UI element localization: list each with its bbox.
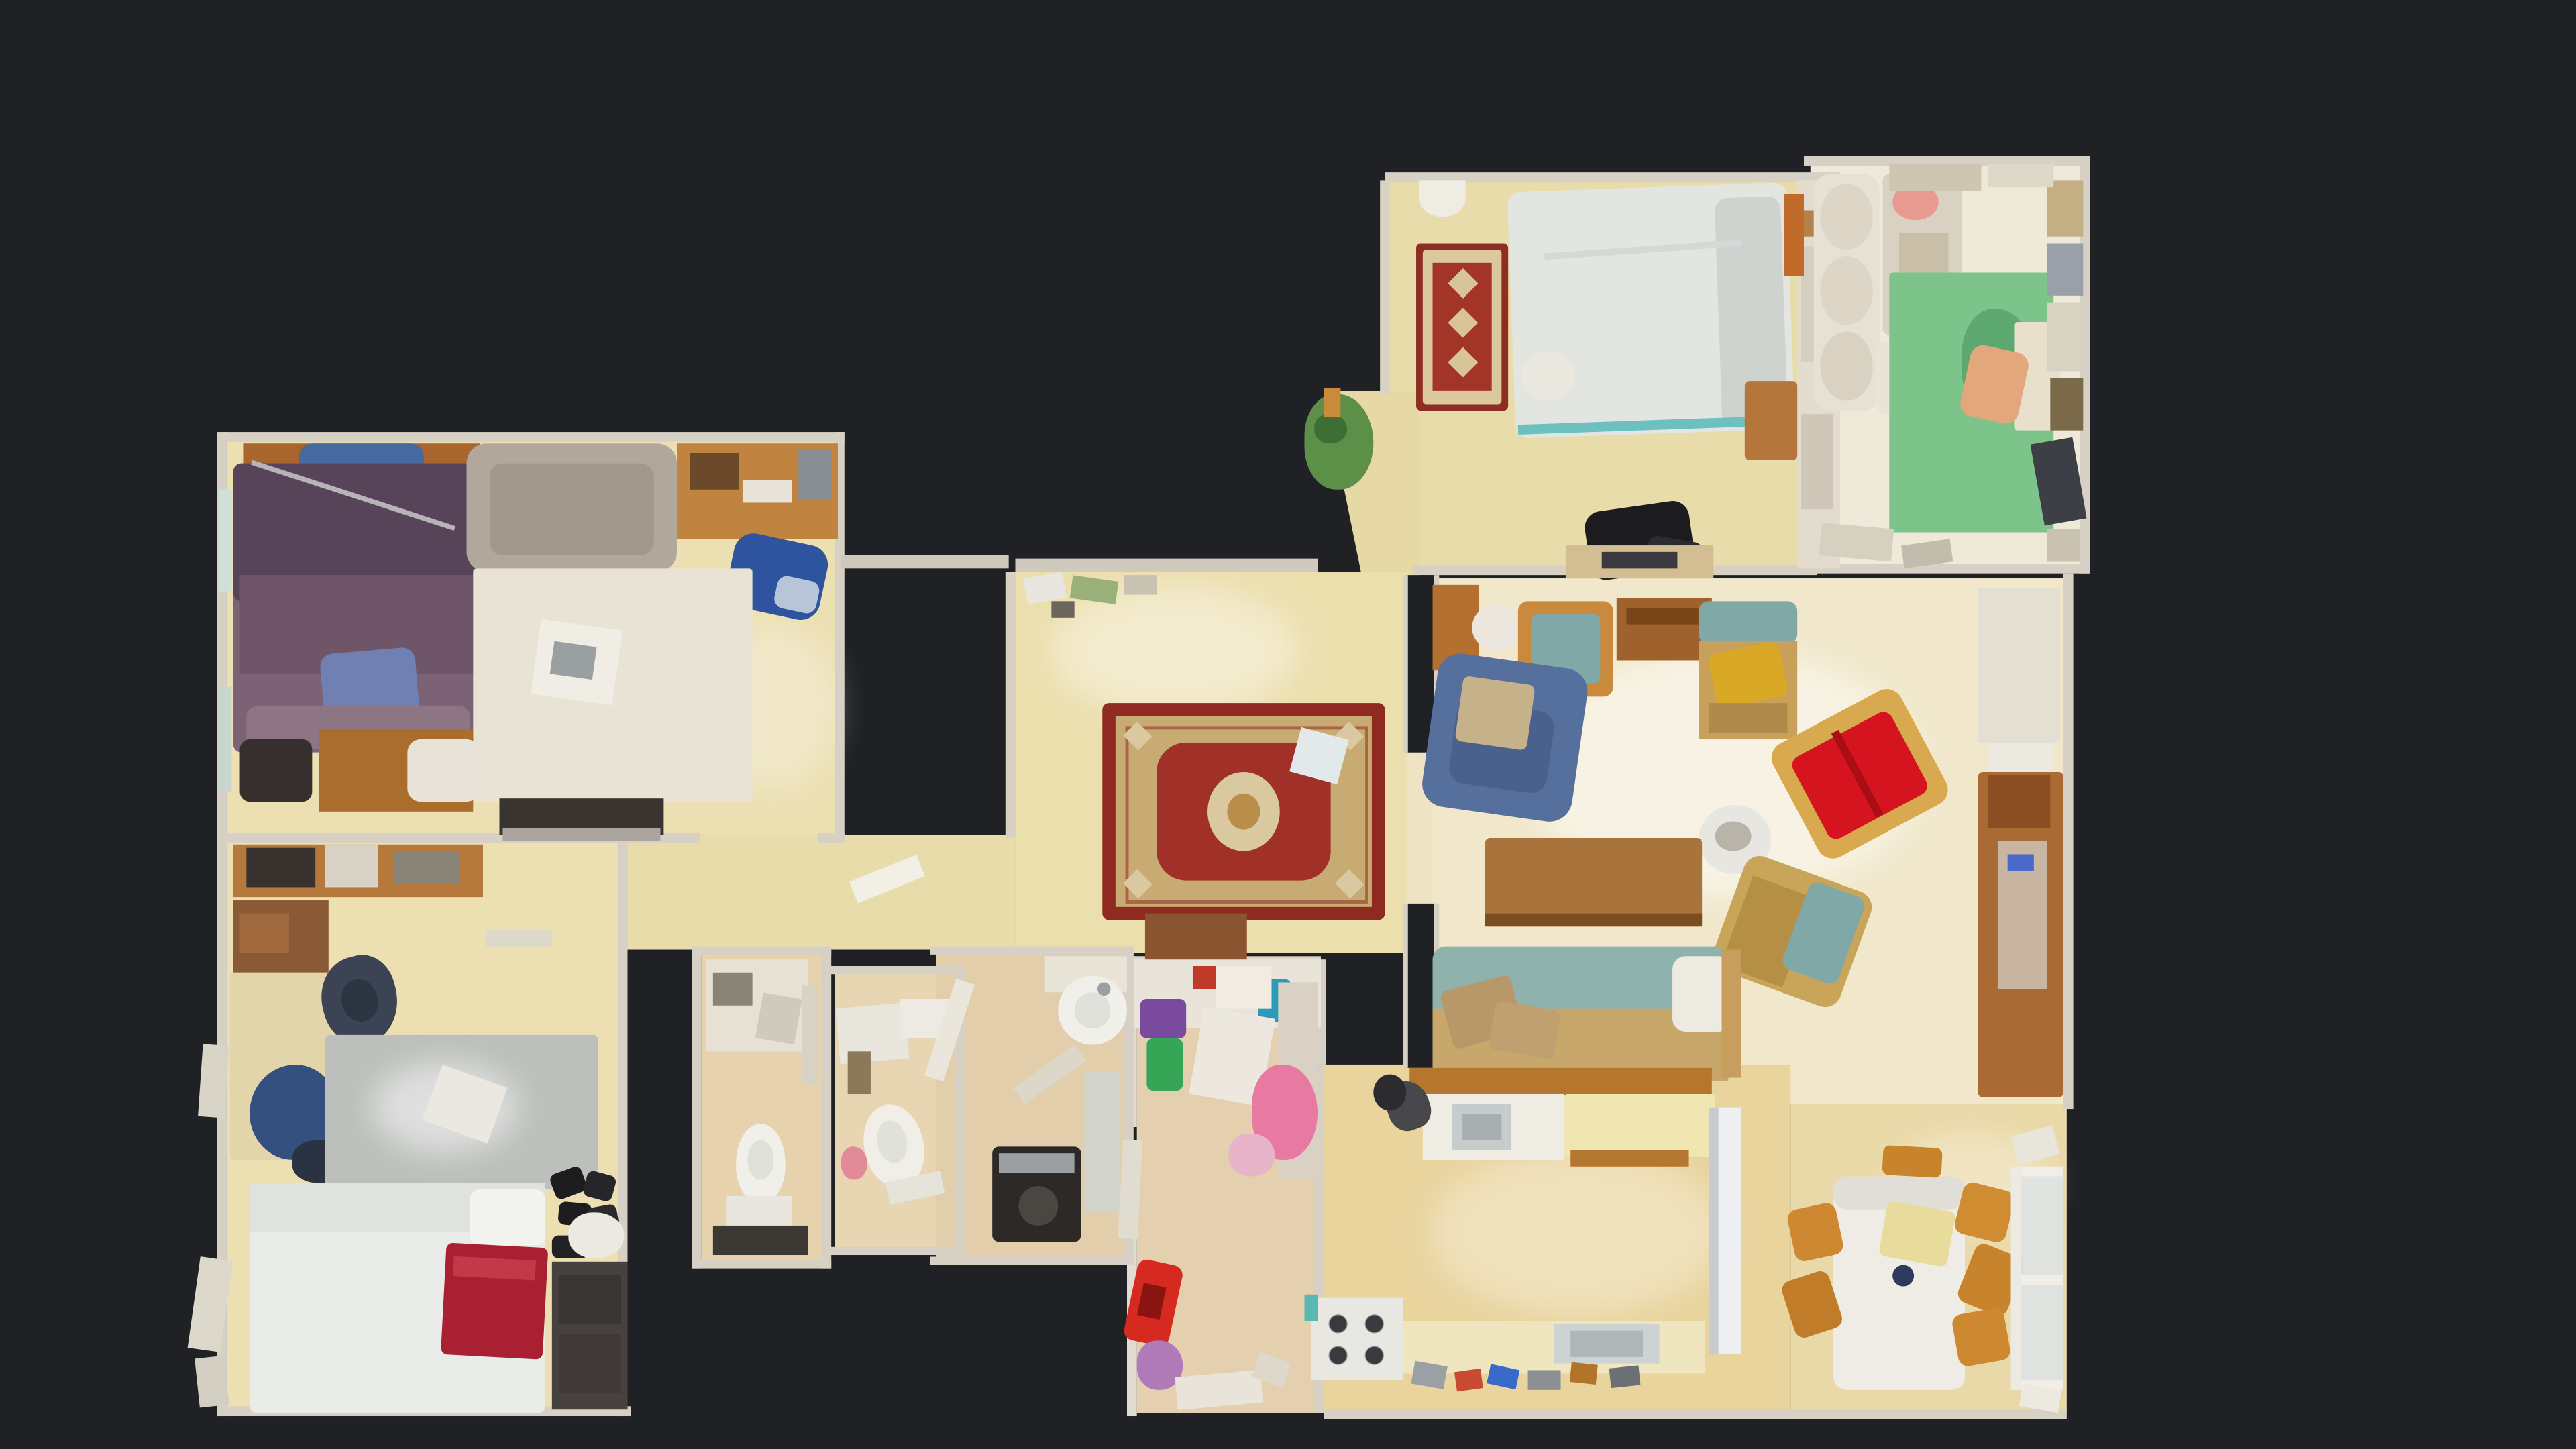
side-table-marks bbox=[1715, 821, 1752, 851]
wall bbox=[930, 1256, 1134, 1265]
dining-chair bbox=[1951, 1307, 2012, 1368]
wall bbox=[826, 1247, 965, 1255]
dining-chair bbox=[1786, 1201, 1845, 1263]
kitchen-table-cream bbox=[1564, 1094, 1715, 1157]
desk-clutter-gray bbox=[798, 450, 831, 499]
viewer-background bbox=[0, 0, 2576, 1449]
top-clutter bbox=[1889, 164, 1981, 191]
radiator bbox=[486, 930, 552, 946]
shelf-clutter bbox=[2050, 378, 2083, 430]
box-marks bbox=[550, 641, 597, 680]
sofa-cushion bbox=[1820, 332, 1872, 401]
wall bbox=[826, 966, 965, 974]
chair-ball-white bbox=[1472, 604, 1521, 651]
bench-seat-pattern bbox=[1709, 703, 1788, 733]
desk-clutter-dark bbox=[690, 453, 739, 490]
floor-clutter bbox=[1819, 523, 1894, 561]
fridge-shadow bbox=[1709, 1108, 1719, 1354]
kitchen-chairs-wood bbox=[1570, 1150, 1688, 1166]
wall bbox=[1324, 1409, 2067, 1419]
clutter-box-label bbox=[1602, 552, 1678, 568]
door-leaf bbox=[1419, 180, 1466, 217]
wall bbox=[821, 947, 831, 1269]
shelf-clutter bbox=[2047, 180, 2083, 236]
dining-chair bbox=[1882, 1145, 1942, 1178]
dresser-panel bbox=[559, 1275, 621, 1324]
wall-void bbox=[1406, 904, 1436, 1068]
kids-clutter-white bbox=[1216, 966, 1271, 1009]
wall bbox=[220, 432, 845, 442]
coffee-table-edge bbox=[1485, 914, 1702, 927]
bed-pillow bbox=[470, 1189, 545, 1245]
bench-back-teal bbox=[1699, 601, 1797, 644]
floor-hallway bbox=[628, 835, 1016, 949]
wardrobe-shelf bbox=[1801, 414, 1833, 509]
headboard-piece bbox=[1784, 194, 1804, 276]
towel-teal bbox=[1304, 1295, 1318, 1321]
wc-shelf bbox=[802, 985, 818, 1084]
counter-sink-2-inner bbox=[1570, 1331, 1643, 1357]
wall bbox=[818, 833, 845, 843]
stove-burners bbox=[1318, 1304, 1397, 1373]
wall-cap bbox=[841, 555, 1009, 569]
entry-clutter bbox=[1124, 575, 1157, 594]
pillow-white bbox=[407, 739, 480, 802]
wall bbox=[2063, 574, 2074, 1109]
shower-glass bbox=[1084, 1071, 1120, 1213]
side-table-top bbox=[1626, 608, 1702, 624]
desk2-mirror bbox=[325, 845, 378, 888]
rug-oriental-core bbox=[1227, 794, 1260, 830]
window-sill bbox=[219, 490, 232, 592]
washer-top bbox=[999, 1153, 1075, 1173]
kids-box-green bbox=[1146, 1038, 1183, 1091]
counter-clutter bbox=[1528, 1370, 1561, 1389]
window-sill bbox=[219, 687, 232, 792]
door-panel-out bbox=[198, 1044, 229, 1118]
wall bbox=[930, 947, 1134, 955]
toilet-inner bbox=[747, 1140, 773, 1180]
floorplan-3d-view[interactable] bbox=[0, 0, 2576, 1449]
kids-clutter-purple bbox=[1140, 999, 1187, 1038]
plant-pot bbox=[1324, 388, 1340, 417]
desk-paper bbox=[743, 480, 792, 502]
plant-shadow bbox=[1314, 414, 1347, 443]
nightstand bbox=[1745, 381, 1797, 460]
washer-door bbox=[1018, 1186, 1058, 1226]
bath2-shower bbox=[836, 1002, 910, 1064]
kitchen-shelf-wood bbox=[1409, 1068, 1712, 1097]
wc-mat-dark bbox=[713, 1226, 808, 1255]
counter-clutter-red bbox=[1454, 1368, 1483, 1392]
wall-cap bbox=[1403, 904, 1407, 1068]
bath2-clutter bbox=[848, 1051, 871, 1094]
corner-clutter-dark bbox=[240, 739, 313, 802]
cabinet-white-tall bbox=[1978, 588, 2060, 743]
bath3-faucet bbox=[1097, 982, 1111, 996]
wall bbox=[692, 1260, 831, 1268]
door-panel-out bbox=[195, 1356, 229, 1408]
wall-cap bbox=[1403, 575, 1407, 752]
glass-door-frame-v bbox=[2011, 1167, 2021, 1390]
wall-cap bbox=[1015, 559, 1318, 572]
sofa-cushion bbox=[1820, 256, 1872, 325]
wall bbox=[692, 947, 702, 1269]
sofa-cushion bbox=[1820, 184, 1872, 250]
dresser-panel bbox=[559, 1334, 621, 1393]
desk2-clutter bbox=[394, 851, 460, 884]
wc-clutter2 bbox=[755, 992, 802, 1044]
wall bbox=[692, 947, 831, 955]
cushion-tapestry bbox=[1454, 676, 1535, 751]
tv-console-light bbox=[502, 828, 660, 841]
pillow-round bbox=[1521, 352, 1574, 400]
entry-clutter-dark bbox=[1051, 601, 1074, 617]
shelf-clutter bbox=[2047, 303, 2083, 372]
sink-basin-inner bbox=[1462, 1114, 1502, 1140]
sofa-arm bbox=[1722, 950, 1741, 1078]
kids-pink-small bbox=[1229, 1134, 1275, 1177]
bath3-sink-inner bbox=[1075, 992, 1111, 1028]
box-white bbox=[1988, 743, 2053, 772]
cup-dark bbox=[1892, 1265, 1914, 1287]
shelf-clutter bbox=[2047, 243, 2083, 295]
shelf-clutter bbox=[2047, 529, 2080, 562]
floor-sheen-center bbox=[1051, 585, 1297, 716]
wall bbox=[1380, 180, 1390, 394]
counter-clutter bbox=[1609, 1365, 1641, 1388]
toilet-tank bbox=[726, 1196, 792, 1226]
storage-brown2 bbox=[240, 914, 289, 953]
sideboard-top bbox=[1988, 775, 2050, 828]
wall bbox=[1804, 563, 2090, 574]
top-clutter bbox=[1988, 164, 2053, 187]
bag-white bbox=[568, 1212, 624, 1258]
wall bbox=[1006, 572, 1016, 838]
desk2-monitor bbox=[246, 848, 315, 888]
counter-clutter-wood bbox=[1570, 1362, 1598, 1385]
floor-sheen-kitchen bbox=[1430, 1150, 1725, 1314]
bath2-pink bbox=[841, 1146, 867, 1179]
wc-clutter-dark bbox=[713, 973, 753, 1006]
tray-yellow bbox=[1878, 1200, 1956, 1267]
sideboard-blue-bit bbox=[2008, 854, 2034, 870]
armchair-gray-seat bbox=[490, 464, 654, 555]
pot-black bbox=[1373, 1075, 1406, 1111]
